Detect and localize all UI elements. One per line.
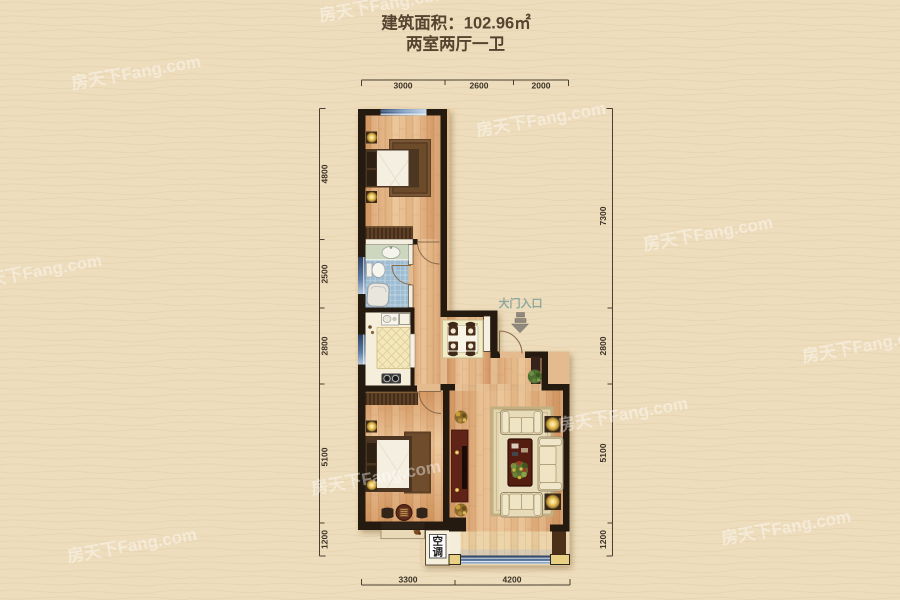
svg-text:4200: 4200 xyxy=(503,575,522,585)
svg-text:7300: 7300 xyxy=(598,206,608,225)
svg-text:调: 调 xyxy=(433,546,444,559)
svg-text:两室两厅一卫: 两室两厅一卫 xyxy=(406,34,505,54)
svg-text:1200: 1200 xyxy=(320,530,330,549)
svg-text:大门入口: 大门入口 xyxy=(499,296,543,310)
svg-text:2500: 2500 xyxy=(320,264,330,283)
svg-text:5100: 5100 xyxy=(598,443,608,462)
svg-text:2600: 2600 xyxy=(470,81,489,91)
svg-text:3000: 3000 xyxy=(394,81,413,91)
svg-text:2800: 2800 xyxy=(320,336,330,355)
svg-text:建筑面积：102.96㎡: 建筑面积：102.96㎡ xyxy=(381,13,531,33)
svg-text:2800: 2800 xyxy=(598,336,608,355)
svg-text:1200: 1200 xyxy=(598,530,608,549)
svg-text:5100: 5100 xyxy=(320,447,330,466)
svg-text:2000: 2000 xyxy=(532,81,551,91)
svg-text:4800: 4800 xyxy=(320,164,330,183)
svg-text:3300: 3300 xyxy=(399,575,418,585)
